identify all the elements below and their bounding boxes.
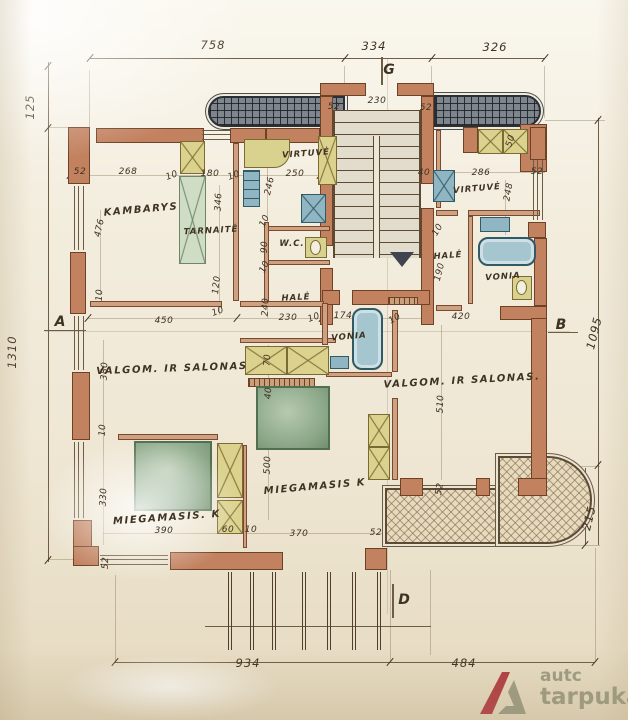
- room-label: HALĖ: [433, 250, 463, 262]
- radiator: [388, 297, 418, 305]
- room-label: W.C.: [279, 239, 304, 249]
- watermark-logo-icon: [478, 666, 530, 716]
- dimension-label: 370: [290, 529, 309, 539]
- interior-wall: [436, 305, 462, 311]
- dimension-label: 10: [226, 169, 241, 183]
- wall-segment: [397, 83, 434, 96]
- interior-wall: [268, 226, 330, 231]
- dimension-label: 246: [263, 176, 277, 196]
- pergola-tie-line: [205, 626, 431, 627]
- room-label: VALGOM. IR SALONAS: [96, 361, 248, 377]
- dimension-label: 326: [483, 40, 508, 54]
- dimension-label: 52: [420, 103, 432, 113]
- pergola-post: [377, 572, 381, 650]
- dimension-label: 90: [260, 241, 270, 254]
- dimension-label: 934: [236, 656, 261, 670]
- dimension-label: 10: [387, 312, 403, 327]
- dimension-label: 10: [258, 259, 272, 275]
- wall-segment: [70, 252, 86, 314]
- dimension-label: 346: [214, 192, 225, 211]
- room-label: VALGOM. IR SALONAS.: [383, 371, 540, 390]
- wall-segment: [463, 127, 478, 153]
- dimension-label: 250: [286, 169, 305, 179]
- dimension-label: 510: [436, 394, 447, 413]
- room-label: KAMBARYS: [103, 201, 179, 218]
- window: [74, 186, 84, 250]
- dimension-label: 420: [452, 312, 471, 322]
- dimension-label: 484: [452, 656, 477, 670]
- marker-line-d: [392, 584, 394, 618]
- dimension-label: 174: [334, 311, 353, 321]
- interior-wall: [468, 216, 473, 304]
- extension-line: [595, 548, 596, 662]
- wall-segment: [72, 372, 90, 440]
- room-label: HALĖ: [281, 292, 310, 303]
- interior-wall: [326, 372, 392, 377]
- step-line: [430, 570, 431, 655]
- bathtub: [478, 237, 536, 266]
- dimension-label: 240: [261, 297, 272, 316]
- stove: [301, 194, 326, 223]
- dimension-line-top: [90, 58, 545, 59]
- dimension-label: 60: [222, 525, 234, 535]
- dimension-label: 476: [93, 218, 107, 238]
- dimension-label: 1095: [583, 315, 605, 351]
- watermark-text-line2: tarpukaris: [540, 686, 628, 709]
- wall-segment: [421, 208, 434, 325]
- terrace-pillar: [400, 478, 423, 496]
- dimension-label: 286: [472, 168, 491, 178]
- closet: [318, 136, 337, 185]
- section-line-a-b: [45, 331, 570, 332]
- interior-wall: [468, 210, 540, 216]
- dimension-label: 52: [370, 528, 382, 538]
- stairs-direction-arrow-icon: [390, 252, 414, 267]
- dimension-label: 500: [263, 455, 274, 474]
- terrace-pillar: [476, 478, 490, 496]
- wc-toilet-bowl: [516, 280, 527, 295]
- wall-segment: [528, 222, 546, 238]
- extension-line: [89, 70, 90, 128]
- dimension-label: 230: [279, 313, 298, 323]
- window: [202, 130, 230, 140]
- marker-label: D: [398, 592, 410, 608]
- closet: [368, 447, 390, 480]
- floor-plan: 7583343261251310109521593448452268101801…: [0, 0, 628, 720]
- terrace-pillar: [518, 478, 547, 496]
- closet: [368, 414, 390, 447]
- pergola-post: [352, 572, 356, 650]
- closet: [478, 129, 503, 154]
- window: [74, 316, 84, 370]
- dimension-label: 390: [155, 526, 174, 536]
- dimension-label: 120: [211, 275, 223, 295]
- dimension-label: 758: [201, 38, 226, 52]
- dimension-label: 10: [98, 424, 108, 437]
- dimension-label: 180: [201, 169, 220, 179]
- room-label: MIEGAMASIS K: [263, 477, 366, 497]
- dimension-label: 248: [502, 182, 515, 202]
- dimension-label: 10: [95, 289, 105, 302]
- interior-wall: [90, 301, 222, 307]
- marker-label: G: [383, 62, 395, 78]
- marker-label: B: [556, 317, 567, 333]
- wall-segment: [320, 83, 366, 96]
- wall-segment: [530, 127, 546, 160]
- washbasin: [480, 217, 510, 232]
- extension-line: [544, 66, 545, 118]
- pergola-post: [250, 572, 254, 650]
- closet: [287, 346, 329, 375]
- dimension-label: 70: [263, 354, 273, 367]
- dimension-label: 52: [531, 167, 543, 177]
- extension-line: [555, 545, 600, 546]
- interior-wall: [322, 303, 328, 345]
- dimension-label: 330: [99, 487, 110, 506]
- floor-plan-sheet: { "drawing": { "kind": "architectural fl…: [0, 0, 628, 720]
- watermark: autc tarpukaris: [478, 662, 626, 718]
- interior-wall: [233, 143, 239, 301]
- pergola-post: [302, 572, 306, 650]
- dimension-label: 1310: [5, 335, 19, 368]
- room-label: TARNAITĖ: [183, 225, 238, 238]
- dimension-label: 334: [362, 39, 387, 53]
- wall-pillar: [365, 548, 387, 570]
- entrance-canopy-right: [434, 95, 541, 127]
- watermark-text-line1: autc: [540, 668, 582, 685]
- dimension-label: 125: [23, 95, 37, 120]
- room-label: VIRTUVĖ: [453, 182, 502, 196]
- marker-line-a: [44, 330, 86, 331]
- staircase-divider: [373, 136, 380, 258]
- dimension-label: 10: [210, 305, 225, 319]
- washbasin: [330, 356, 349, 369]
- pergola-post: [272, 572, 276, 650]
- pergola-post: [327, 572, 331, 650]
- wc-toilet-bowl: [310, 240, 321, 255]
- dimension-label: 230: [368, 96, 387, 106]
- dimension-label: 10: [245, 525, 257, 535]
- interior-wall: [392, 398, 398, 480]
- extension-line: [48, 127, 70, 128]
- marker-label: A: [55, 314, 66, 330]
- dimension-label: 268: [119, 167, 138, 177]
- dimension-label: 190: [433, 262, 447, 283]
- dimension-label: 52: [101, 557, 111, 570]
- dimension-label: 52: [434, 482, 446, 496]
- interior-wall: [268, 260, 330, 265]
- extension-line: [390, 570, 391, 662]
- wardrobe: [179, 176, 206, 264]
- dimension-label: 40: [418, 168, 430, 178]
- interior-wall: [436, 210, 458, 216]
- dimension-label: 450: [155, 316, 174, 326]
- dimension-label: 52: [328, 102, 340, 112]
- extension-line: [115, 575, 116, 662]
- wall-segment: [531, 318, 547, 480]
- kitchen-appliance: [243, 170, 260, 207]
- pergola-post: [228, 572, 232, 650]
- dimension-label: 52: [74, 167, 86, 177]
- dimension-label: 40: [264, 387, 274, 400]
- dimension-label: 10: [164, 169, 179, 183]
